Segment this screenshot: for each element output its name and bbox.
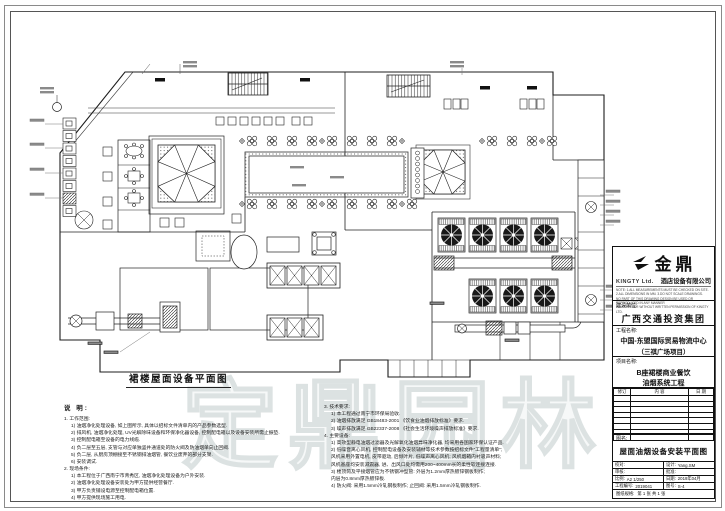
rooftop-units xyxy=(216,99,544,125)
scale-value: A2 1/250 xyxy=(627,477,644,482)
exhaust-fan xyxy=(531,218,558,252)
skylight-octagon xyxy=(152,139,221,208)
elevator-bank xyxy=(267,263,340,340)
notes-right-lines: 3. 技术要求:1) 本工程通过南宁市环保局验收.2) 油烟排放满足 GB184… xyxy=(324,404,606,490)
job-number-value: 2019041 xyxy=(635,484,652,489)
exhaust-fan-yard xyxy=(434,218,586,313)
exhaust-fan xyxy=(438,218,465,252)
canopy-edge xyxy=(88,108,335,113)
leader-annotations-left xyxy=(30,119,63,198)
paper-size-row: 图纸规格: 第 1 张 共 1 张 xyxy=(613,490,714,498)
project-name-line1: 中国-东盟国际贸易物流中心 xyxy=(616,336,711,346)
revision-col-date: 日 期 xyxy=(689,389,714,396)
title-block: 金鼎 KINGTY Ltd. 酒店设备有限公司 NOTE: 1.ALL MEAS… xyxy=(612,246,715,499)
exhaust-fan xyxy=(531,279,558,313)
paper-size-label: 图纸规格: xyxy=(616,491,634,497)
client-name: 广西交通投资集团 xyxy=(616,312,711,325)
revision-table: 修订 内 容 日 期 xyxy=(613,388,714,434)
design-value: Yang.SM xyxy=(678,463,695,468)
stairwell-icon xyxy=(228,73,430,97)
drawing-name: 屋面油烟设备安装平面图 xyxy=(616,446,711,457)
riser-stack xyxy=(63,118,93,229)
logo-text: 金鼎 xyxy=(655,250,697,275)
notes-left-column: 说 明: 1. 工作范围:1) 油烟净化处理设备, 如上图所示, 具体以招标文件… xyxy=(64,404,316,502)
company-name: 酒店设备有限公司 xyxy=(661,276,711,285)
escalator-strip xyxy=(411,148,424,198)
info-grid: 校对: 设计: Yang.SM 审核: 批准: xyxy=(613,462,714,490)
project-name-line2: （三祺广场项目） xyxy=(616,346,711,356)
notes-title: 说 明: xyxy=(64,404,316,414)
project-label: 工程名称: xyxy=(616,327,711,334)
item-label: 项目名称: xyxy=(616,358,711,365)
item-section: 项目名称: B座裙楼商业餐饮 油烟系统工程 xyxy=(613,357,714,388)
revision-col-content: 内 容 xyxy=(631,389,689,396)
notes-right-column: 3. 技术要求:1) 本工程通过南宁市环保局验收.2) 油烟排放满足 GB184… xyxy=(324,404,606,490)
item-name-line2: 油烟系统工程 xyxy=(616,378,711,388)
revision-col-rev: 修订 xyxy=(614,389,631,396)
client-label: 建设单位: xyxy=(616,302,711,309)
skylight-band xyxy=(245,152,408,197)
notes-left-lines: 1. 工作范围:1) 油烟净化处理设备, 如上图所示, 具体以招标文件清单内的产… xyxy=(64,416,316,502)
approve-label: 批准: xyxy=(666,469,676,475)
duct-assembly xyxy=(68,302,180,353)
title-block-logo-section: 金鼎 KINGTY Ltd. 酒店设备有限公司 NOTE: 1.ALL MEAS… xyxy=(613,247,714,301)
item-name-line1: B座裙楼商业餐饮 xyxy=(616,368,711,378)
plan-caption: 裙楼屋面设备平面图 xyxy=(126,371,231,388)
drawing-sheet: 定鼎园林 裙楼屋面设备平面图 说 明: 1. 工作范围:1) 油烟净化处理设备,… xyxy=(0,0,725,511)
exhaust-fan xyxy=(469,218,496,252)
sheet-number-value: S-4 xyxy=(678,484,685,489)
drawing-name-label: 图名: xyxy=(616,435,711,442)
check-label: 校对: xyxy=(615,462,625,468)
logo-en-text: KINGTY Ltd. xyxy=(616,279,654,285)
date-value: 2019年04月 xyxy=(678,476,701,482)
job-number-label: 工程编号: xyxy=(615,483,633,489)
project-section: 工程名称: 中国-东盟国际贸易物流中心 （三祺广场项目） xyxy=(613,326,714,357)
dimension-marks xyxy=(155,78,537,90)
exhaust-fan xyxy=(469,279,496,313)
meeting-tables xyxy=(125,143,144,207)
service-shafts xyxy=(578,160,604,322)
drawing-name-section: 图名: 屋面油烟设备安装平面图 xyxy=(613,434,714,462)
paper-size-value: 第 1 张 共 1 张 xyxy=(637,491,665,497)
design-label: 设计: xyxy=(666,462,676,468)
sheet-number-label: 图号: xyxy=(666,483,676,489)
client-section: 建设单位: 广西交通投资集团 xyxy=(613,301,714,326)
date-label: 日期: xyxy=(666,476,676,482)
exhaust-fan xyxy=(500,279,527,313)
scale-label: 比例: xyxy=(615,476,625,482)
kingty-logo-icon xyxy=(631,255,651,271)
audit-label: 审核: xyxy=(615,469,625,475)
exhaust-fan xyxy=(500,218,527,252)
